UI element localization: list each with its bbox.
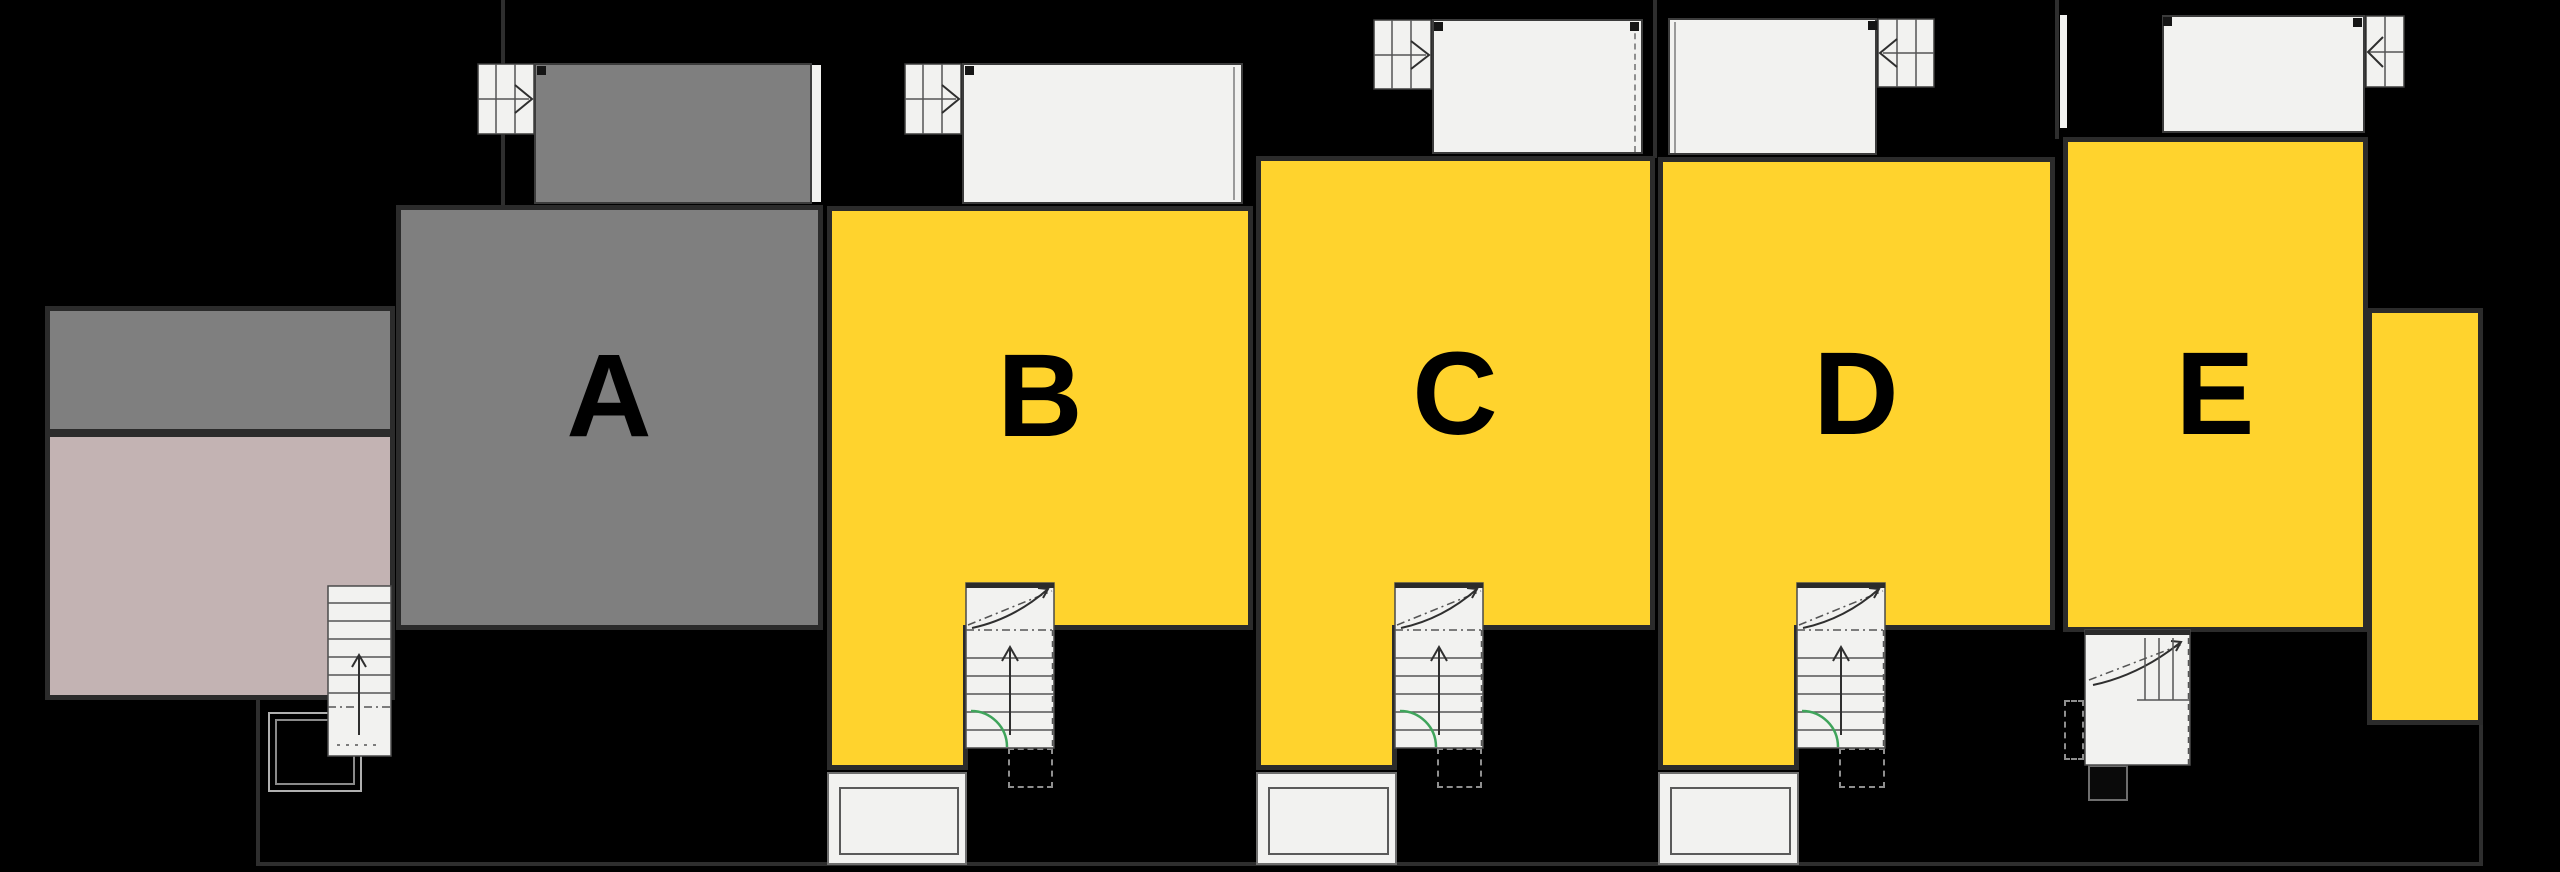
column-marker [2163,17,2172,26]
staircase-icon [1797,583,1885,748]
under-stair-store [1839,748,1885,788]
staircase-icon [966,583,1054,748]
unit-a-label: A [566,337,651,455]
stairs-icon [1877,18,1935,88]
unit-d-entry-wing[interactable] [1658,625,1799,770]
under-stair-store [1008,748,1053,788]
stairs-up-icon [327,585,392,757]
unit-b-terrace [962,63,1243,204]
party-wall-strip [2060,15,2067,128]
unit-c-label: C [1412,335,1497,453]
column-marker [2353,18,2362,27]
unit-d-terrace [1668,18,1877,155]
porch-step [1670,787,1791,855]
stairs-icon [477,63,535,135]
unit-b-porch [827,772,967,865]
column-marker [537,66,546,75]
terrace-railing [1674,22,1676,153]
column-marker [1630,22,1639,31]
under-stair-store [2064,700,2084,760]
stairs-icon [904,63,962,135]
site-plan: A B [0,0,2560,872]
site-boundary-line [2479,725,2483,866]
terrace-railing [1634,23,1636,152]
unit-c-porch [1256,772,1397,865]
unit-c-entry-wing[interactable] [1256,625,1397,770]
staircase-icon [1395,583,1483,748]
site-boundary-line [1653,0,1657,158]
column-marker [965,66,974,75]
staircase-icon [2085,630,2190,765]
unit-b-entry-wing[interactable] [827,625,968,770]
unit-d-label: D [1813,335,1898,453]
column-marker [1434,22,1443,31]
stairs-icon [2365,15,2405,88]
site-boundary-line [256,700,260,866]
unit-e-terrace [2162,15,2365,133]
porch-step [1268,787,1389,855]
unit-a-upper-floor [534,63,812,204]
under-stair-store [1437,748,1482,788]
unit-c-terrace [1432,19,1643,154]
unit-e-side-wing[interactable] [2367,308,2483,725]
unit-d-porch [1658,772,1799,865]
unit-a-garage-annex [45,306,395,434]
porch-step [839,787,959,855]
unit-b-label: B [997,337,1082,455]
column-marker [1868,21,1877,30]
unit-a-upper-floor-edge [812,65,821,202]
unit-e-label: E [2176,335,2255,453]
meter-box [2088,765,2128,801]
site-boundary-line [2055,0,2059,139]
terrace-railing [1233,67,1235,200]
stairs-icon [1373,19,1432,90]
